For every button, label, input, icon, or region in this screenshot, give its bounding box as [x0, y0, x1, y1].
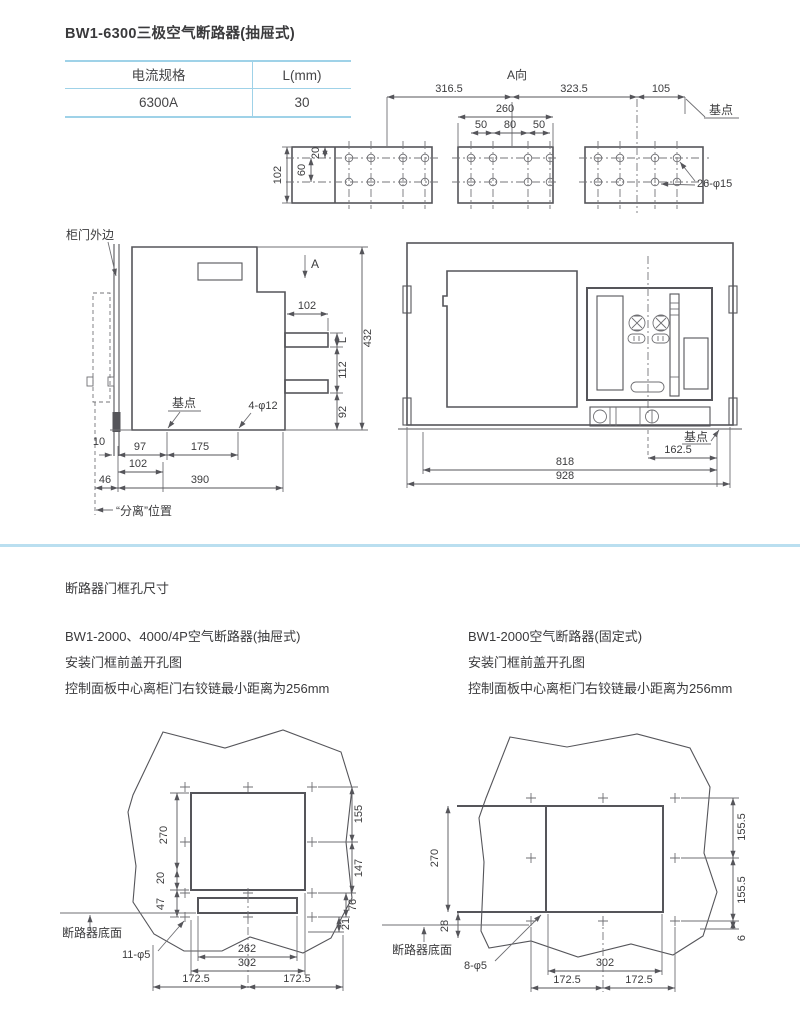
dl-dim-172-5-right: 172.5	[283, 973, 311, 985]
section-a-label: A	[311, 257, 319, 271]
front-base-point-label: 基点	[684, 430, 708, 444]
dl-dim-270: 270	[158, 826, 170, 844]
dim-50-left: 50	[475, 119, 487, 131]
dim-50-right: 50	[533, 119, 545, 131]
drawer-note-line1: BW1-2000、4000/4P空气断路器(抽屉式)	[65, 624, 329, 650]
fixed-note-line1: BW1-2000空气断路器(固定式)	[468, 624, 732, 650]
separated-position-label: “分离”位置	[116, 503, 172, 518]
drawer-cutout-drawing: 270 20 47 155 147 76 21 262 302 172.5 17…	[60, 730, 365, 991]
dim-80: 80	[504, 119, 516, 131]
dl-dim-21: 21	[340, 918, 352, 930]
dim-97: 97	[134, 441, 146, 453]
holes-8-phi5: 8-φ5	[464, 960, 487, 972]
dl-dim-76: 76	[347, 899, 359, 911]
dim-105: 105	[652, 83, 670, 95]
dim-260: 260	[496, 103, 514, 115]
fx-dim-155-5-bottom: 155.5	[736, 876, 748, 904]
dl-dim-302: 302	[238, 957, 256, 969]
dl-dim-172-5-left: 172.5	[182, 973, 210, 985]
dim-60: 60	[296, 164, 308, 176]
fx-dim-155-5-top: 155.5	[736, 813, 748, 841]
fx-dim-6: 6	[736, 935, 748, 941]
dim-390: 390	[191, 474, 209, 486]
fixed-note-line3: 控制面板中心离柜门右铰链最小距离为256mm	[468, 676, 732, 702]
dl-dim-155: 155	[353, 805, 365, 823]
a-view-drawing: A向 316.5 323.5 105 基点 260 50 80 50 102 6…	[272, 67, 739, 213]
fx-dim-172-5-left: 172.5	[553, 974, 581, 986]
dim-102-plate: 102	[272, 166, 284, 184]
dim-112: 112	[337, 361, 349, 379]
fixed-cutout-notes: BW1-2000空气断路器(固定式) 安装门框前盖开孔图 控制面板中心离柜门右铰…	[468, 624, 732, 702]
drawer-note-line2: 安装门框前盖开孔图	[65, 650, 329, 676]
side-view-drawing: 柜门外边 A 102 L 112 92 432 基点 4-φ12 10 97 1…	[66, 227, 374, 518]
dim-20-plate: 20	[310, 147, 322, 159]
technical-drawing: A向 316.5 323.5 105 基点 260 50 80 50 102 6…	[0, 0, 800, 1020]
dim-102-top: 102	[298, 300, 316, 312]
a-view-base-point-label: 基点	[709, 103, 733, 117]
side-base-point-label: 基点	[172, 396, 196, 410]
front-view-drawing: 基点 162.5 818 928	[398, 243, 742, 488]
fx-dim-28: 28	[439, 920, 451, 932]
fx-dim-270: 270	[429, 849, 441, 867]
drawer-note-line3: 控制面板中心离柜门右铰链最小距离为256mm	[65, 676, 329, 702]
fixed-note-line2: 安装门框前盖开孔图	[468, 650, 732, 676]
a-view-label: A向	[507, 67, 527, 82]
dim-818: 818	[556, 456, 574, 468]
section-divider	[0, 544, 800, 547]
dl-bottom-face-label: 断路器底面	[62, 925, 122, 940]
dim-175: 175	[191, 441, 209, 453]
dim-L: L	[337, 337, 349, 343]
dl-dim-147: 147	[353, 859, 365, 877]
holes-11-phi5: 11-φ5	[122, 949, 150, 961]
holes-4-phi12: 4-φ12	[248, 400, 277, 412]
fixed-cutout-drawing: 270 155.5 155.5 6 28 302 172.5 172.5 断路器…	[382, 734, 748, 992]
holes-26-phi15: 26-φ15	[697, 178, 732, 190]
dl-dim-20: 20	[155, 872, 167, 884]
fx-dim-302: 302	[596, 957, 614, 969]
door-edge-label: 柜门外边	[66, 227, 114, 242]
dim-316-5: 316.5	[435, 83, 463, 95]
drawer-cutout-notes: BW1-2000、4000/4P空气断路器(抽屉式) 安装门框前盖开孔图 控制面…	[65, 624, 329, 702]
fx-bottom-face-label: 断路器底面	[392, 942, 452, 957]
dim-92: 92	[337, 406, 349, 418]
dim-162-5: 162.5	[664, 444, 692, 456]
fx-dim-172-5-right: 172.5	[625, 974, 653, 986]
dl-dim-262: 262	[238, 943, 256, 955]
dim-323-5: 323.5	[560, 83, 588, 95]
dl-dim-47: 47	[155, 898, 167, 910]
dim-102-bottom: 102	[129, 458, 147, 470]
dim-432: 432	[362, 329, 374, 347]
dim-10: 10	[93, 436, 105, 448]
dim-46: 46	[99, 474, 111, 486]
dim-928: 928	[556, 470, 574, 482]
door-section-title: 断路器门框孔尺寸	[65, 578, 169, 597]
